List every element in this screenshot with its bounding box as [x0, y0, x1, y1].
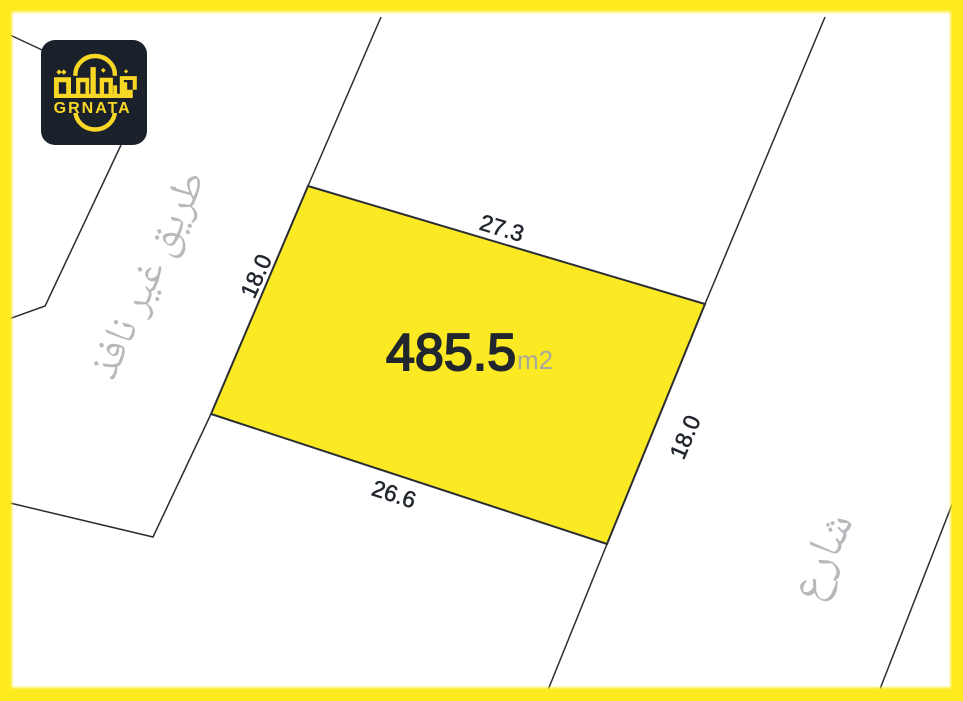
svg-text:GRNATA: GRNATA: [54, 100, 132, 117]
svg-text:m2: m2: [517, 345, 553, 375]
svg-text:485.5: 485.5: [386, 324, 516, 382]
